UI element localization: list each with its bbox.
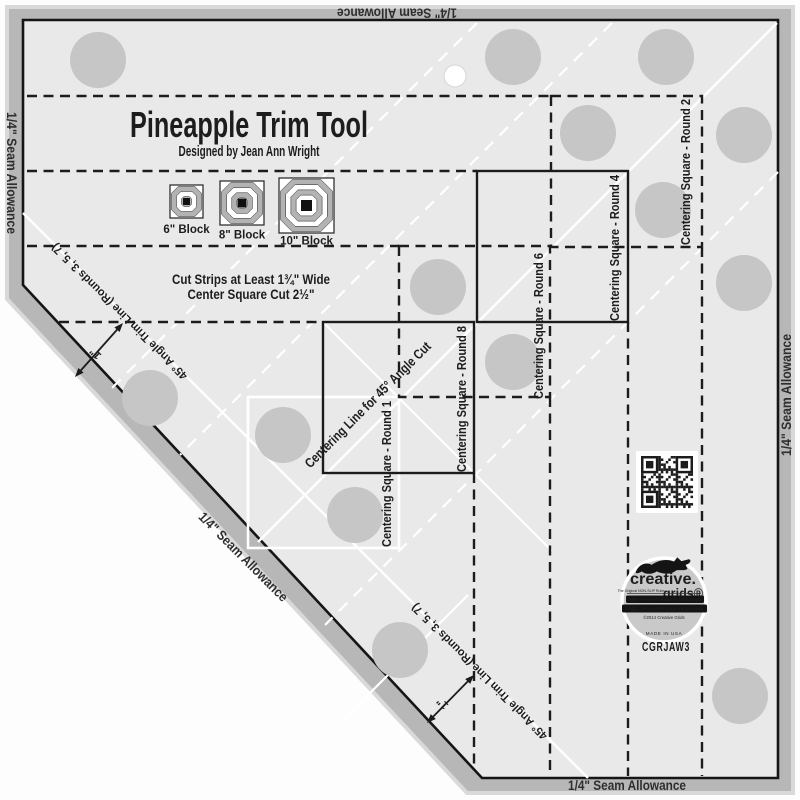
qr-module (668, 483, 671, 486)
qr-module (673, 468, 676, 471)
seam-label-left: 1/4" Seam Allowance (4, 112, 19, 234)
qr-module (661, 481, 664, 484)
qr-module (676, 478, 679, 481)
qr-module (646, 486, 649, 489)
hanging-hole (444, 65, 466, 87)
qr-module (683, 496, 686, 499)
qr-module (686, 501, 689, 504)
qr-module (686, 503, 689, 506)
qr-module (686, 493, 689, 496)
qr-module (641, 473, 644, 476)
qr-module (663, 481, 666, 484)
block-center-square (238, 199, 247, 208)
qr-module (671, 491, 674, 494)
qr-module (658, 463, 661, 466)
round4-label: Centering Square - Round 4 (607, 174, 622, 321)
qr-module (641, 486, 644, 489)
seam-label-top: 1/4" Seam Allowance (337, 6, 457, 21)
page-title: Pineapple Trim Tool (130, 104, 368, 145)
qr-module (691, 478, 694, 481)
qr-module (688, 473, 691, 476)
round1-label: Centering Square - Round 1 (379, 401, 394, 547)
qr-module (668, 458, 671, 461)
qr-module (641, 488, 644, 491)
qr-module (683, 488, 686, 491)
qr-module (641, 476, 644, 479)
qr-module (661, 503, 664, 506)
qr-module (663, 498, 666, 501)
qr-module (641, 481, 644, 484)
grip-dot (410, 259, 466, 315)
qr-module (661, 498, 664, 501)
qr-module (658, 476, 661, 479)
qr-module (658, 496, 661, 499)
logo-copyright: ©2014 Creative Grids (643, 615, 684, 620)
qr-module (658, 468, 661, 471)
qr-module (671, 473, 674, 476)
qr-module (658, 481, 661, 484)
qr-module (671, 468, 674, 471)
instruction-line-1: Cut Strips at Least 1¾" Wide (172, 272, 330, 287)
qr-module (678, 486, 681, 489)
qr-module (661, 486, 664, 489)
page-subtitle: Designed by Jean Ann Wright (179, 144, 320, 160)
qr-module (666, 506, 669, 509)
qr-module (668, 503, 671, 506)
qr-module (691, 473, 694, 476)
block-center-square (301, 200, 312, 211)
qr-module (658, 478, 661, 481)
round6-label: Centering Square - Round 6 (531, 253, 546, 399)
qr-module (658, 486, 661, 489)
qr-module (676, 483, 679, 486)
qr-module (681, 481, 684, 484)
qr-module (641, 478, 644, 481)
qr-module (678, 481, 681, 484)
qr-module (643, 481, 646, 484)
qr-module (658, 488, 661, 491)
qr-module (658, 498, 661, 501)
qr-module (688, 491, 691, 494)
qr-module (666, 503, 669, 506)
qr-module (666, 496, 669, 499)
qr-module (658, 461, 661, 464)
qr-module (676, 473, 679, 476)
block-center-square (183, 198, 190, 205)
block-label-6: 6" Block (163, 224, 210, 236)
qr-module (676, 506, 679, 509)
qr-timing (656, 476, 659, 479)
qr-module (681, 498, 684, 501)
qr-module (673, 491, 676, 494)
logo-made-in: MADE IN USA (646, 631, 683, 636)
qr-module (666, 488, 669, 491)
qr-module (686, 483, 689, 486)
grip-dot (560, 105, 616, 161)
qr-module (688, 506, 691, 509)
qr-module (653, 486, 656, 489)
qr-module (671, 503, 674, 506)
logo-url-uk: UK - www.creativegrids.com (630, 597, 700, 603)
product-code: CGRJAW3 (642, 639, 690, 654)
qr-code (636, 451, 698, 513)
logo-tagline: The Original NON-SLIP Ruler (617, 589, 665, 593)
qr-module (658, 466, 661, 469)
qr-module (658, 483, 661, 486)
qr-module (643, 486, 646, 489)
qr-module (673, 473, 676, 476)
pineapple-block-diagram (170, 185, 203, 218)
qr-module (673, 461, 676, 464)
qr-module (661, 476, 664, 479)
qr-module (663, 468, 666, 471)
qr-module (653, 473, 656, 476)
qr-module (676, 491, 679, 494)
qr-module (678, 476, 681, 479)
qr-module (681, 503, 684, 506)
qr-module (688, 503, 691, 506)
qr-module (666, 468, 669, 471)
qr-module (683, 486, 686, 489)
qr-module (676, 503, 679, 506)
grip-dot (716, 255, 772, 311)
qr-finder (646, 496, 653, 503)
qr-module (676, 488, 679, 491)
grip-dot (122, 370, 178, 426)
cutting-instructions: Cut Strips at Least 1¾" Wide Center Squa… (172, 272, 330, 302)
qr-module (676, 476, 679, 479)
qr-timing (671, 471, 674, 474)
qr-module (658, 458, 661, 461)
qr-module (661, 468, 664, 471)
instruction-line-2: Center Square Cut 2½" (188, 287, 315, 302)
qr-module (673, 503, 676, 506)
qr-module (648, 478, 651, 481)
qr-module (676, 493, 679, 496)
qr-module (663, 486, 666, 489)
qr-module (661, 458, 664, 461)
qr-timing (656, 481, 659, 484)
qr-finder (646, 461, 653, 468)
qr-module (658, 501, 661, 504)
qr-module (683, 506, 686, 509)
qr-module (661, 493, 664, 496)
qr-module (683, 478, 686, 481)
qr-module (663, 501, 666, 504)
qr-module (653, 488, 656, 491)
qr-timing (656, 486, 659, 489)
qr-module (668, 486, 671, 489)
qr-module (663, 503, 666, 506)
qr-module (663, 466, 666, 469)
qr-module (676, 496, 679, 499)
block-label-10: 10" Block (280, 236, 333, 248)
qr-module (688, 486, 691, 489)
qr-module (666, 461, 669, 464)
qr-module (673, 486, 676, 489)
qr-module (651, 486, 654, 489)
qr-module (646, 483, 649, 486)
qr-module (661, 463, 664, 466)
grip-dot (712, 668, 768, 724)
ruler-product-image: Centering Square - Round 1 Centering Squ… (0, 0, 800, 800)
qr-module (666, 478, 669, 481)
qr-module (676, 486, 679, 489)
qr-module (671, 456, 674, 459)
qr-module (651, 483, 654, 486)
grip-dot (716, 107, 772, 163)
qr-module (646, 481, 649, 484)
qr-module (651, 476, 654, 479)
logo-url-usa: USA - www.creativegridsusa.com (625, 607, 704, 613)
qr-module (686, 486, 689, 489)
seam-label-right: 1/4" Seam Allowance (779, 334, 794, 456)
qr-module (671, 486, 674, 489)
qr-module (658, 473, 661, 476)
round8-label: Centering Square - Round 8 (454, 326, 469, 472)
qr-module (668, 476, 671, 479)
qr-module (691, 496, 694, 499)
qr-module (668, 466, 671, 469)
qr-module (683, 503, 686, 506)
qr-module (643, 476, 646, 479)
grip-dot (255, 407, 311, 463)
pineapple-block-diagram (220, 181, 264, 225)
qr-timing (661, 471, 664, 474)
qr-module (673, 456, 676, 459)
qr-module (678, 503, 681, 506)
qr-module (658, 456, 661, 459)
qr-module (668, 493, 671, 496)
qr-finder (681, 461, 688, 468)
qr-module (691, 486, 694, 489)
qr-module (671, 506, 674, 509)
qr-timing (666, 471, 669, 474)
qr-module (681, 501, 684, 504)
qr-module (681, 486, 684, 489)
qr-module (691, 503, 694, 506)
qr-module (648, 486, 651, 489)
qr-module (673, 478, 676, 481)
grip-dot (638, 29, 694, 85)
qr-module (666, 486, 669, 489)
round2-label: Centering Square - Round 2 (678, 99, 693, 245)
grip-dot (327, 487, 383, 543)
qr-module (686, 476, 689, 479)
block-label-8: 8" Block (219, 230, 266, 242)
qr-module (641, 483, 644, 486)
grip-dot (70, 32, 126, 88)
qr-module (671, 488, 674, 491)
pineapple-block-diagram (279, 178, 334, 233)
qr-module (663, 483, 666, 486)
qr-module (678, 493, 681, 496)
qr-module (658, 503, 661, 506)
qr-module (658, 491, 661, 494)
qr-module (691, 491, 694, 494)
grip-dot (485, 29, 541, 85)
qr-module (673, 496, 676, 499)
qr-module (648, 488, 651, 491)
seam-label-bottom: 1/4" Seam Allowance (568, 778, 686, 793)
qr-module (678, 498, 681, 501)
qr-module (681, 483, 684, 486)
qr-module (676, 501, 679, 504)
qr-module (663, 463, 666, 466)
qr-module (658, 506, 661, 509)
pineapple-trim-tool-ruler: Centering Square - Round 1 Centering Squ… (0, 0, 800, 800)
qr-module (658, 493, 661, 496)
qr-module (668, 501, 671, 504)
grip-dot (372, 622, 428, 678)
qr-module (676, 481, 679, 484)
qr-module (676, 498, 679, 501)
qr-module (688, 488, 691, 491)
qr-module (668, 468, 671, 471)
